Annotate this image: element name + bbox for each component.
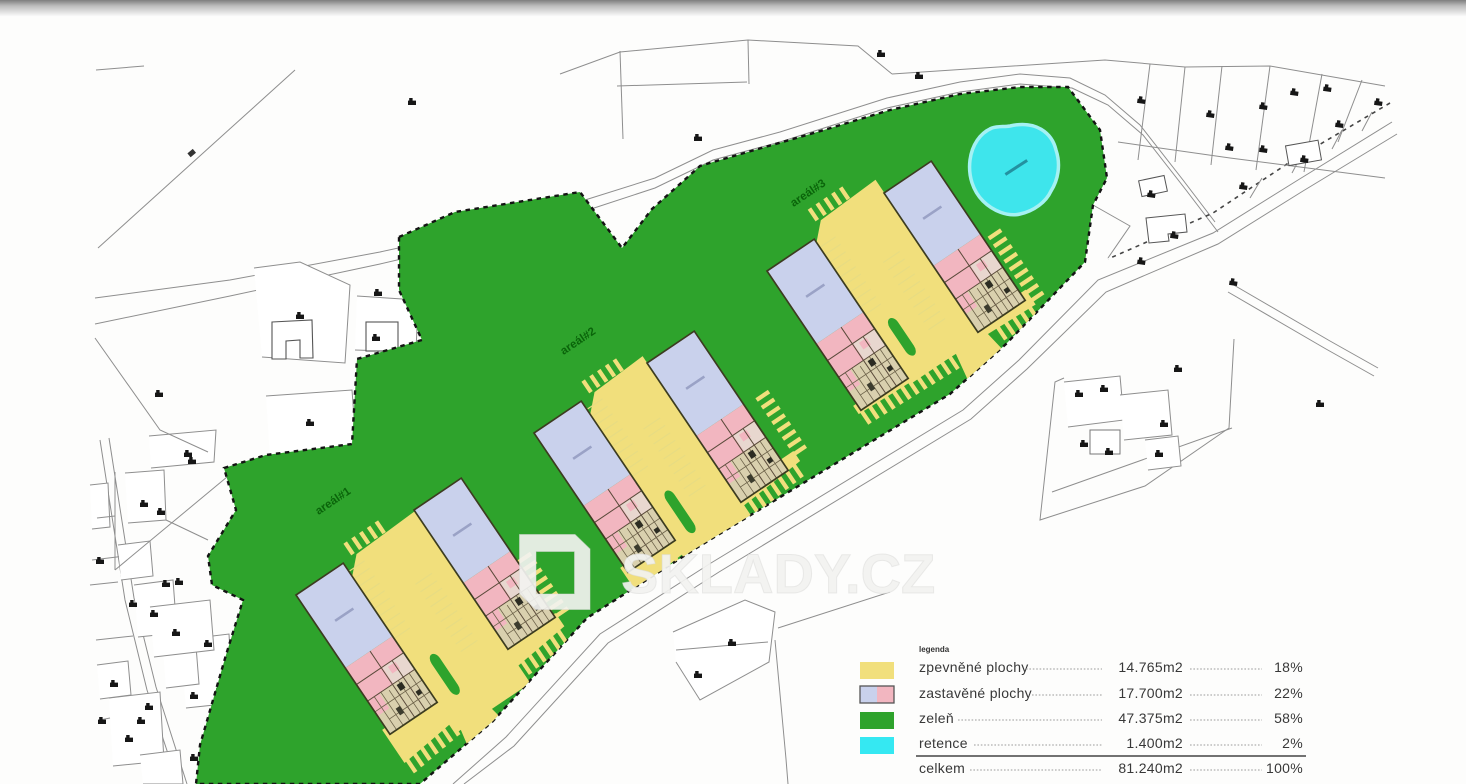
svg-text:22%: 22% <box>1274 685 1303 701</box>
svg-text:SKLADY.CZ: SKLADY.CZ <box>621 542 935 605</box>
svg-text:1.400m2: 1.400m2 <box>1126 735 1183 751</box>
svg-text:81.240m2: 81.240m2 <box>1118 760 1183 776</box>
svg-text:47.375m2: 47.375m2 <box>1118 710 1183 726</box>
svg-text:retence: retence <box>919 735 968 751</box>
svg-text:zeleň: zeleň <box>919 710 954 726</box>
svg-text:100%: 100% <box>1266 760 1303 776</box>
svg-text:zpevněné plochy: zpevněné plochy <box>919 659 1029 675</box>
svg-text:58%: 58% <box>1274 710 1303 726</box>
svg-text:18%: 18% <box>1274 659 1303 675</box>
svg-text:legenda: legenda <box>919 645 950 654</box>
svg-text:17.700m2: 17.700m2 <box>1118 685 1183 701</box>
svg-text:2%: 2% <box>1282 735 1303 751</box>
svg-text:14.765m2: 14.765m2 <box>1118 659 1183 675</box>
svg-text:celkem: celkem <box>919 760 965 776</box>
svg-text:zastavěné plochy: zastavěné plochy <box>919 685 1032 701</box>
